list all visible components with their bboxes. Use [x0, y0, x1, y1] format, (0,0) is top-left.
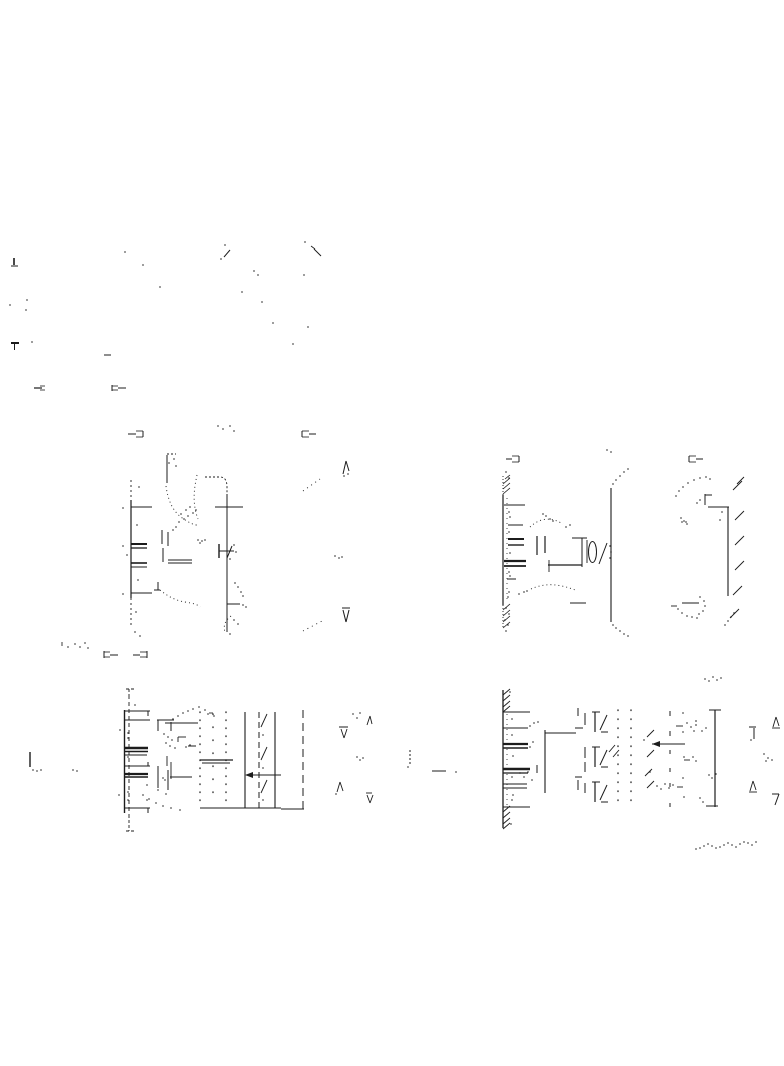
mid-left-section-view	[122, 454, 350, 637]
drawing-sheet	[0, 0, 784, 1066]
mid-right-section-view	[503, 468, 744, 636]
top-scatter-marks	[9, 241, 321, 391]
drawing-canvas	[0, 0, 784, 1066]
bottom-left-section-view	[30, 689, 457, 831]
section-marker-row	[61, 425, 703, 658]
bottom-right-section-view	[503, 676, 780, 849]
